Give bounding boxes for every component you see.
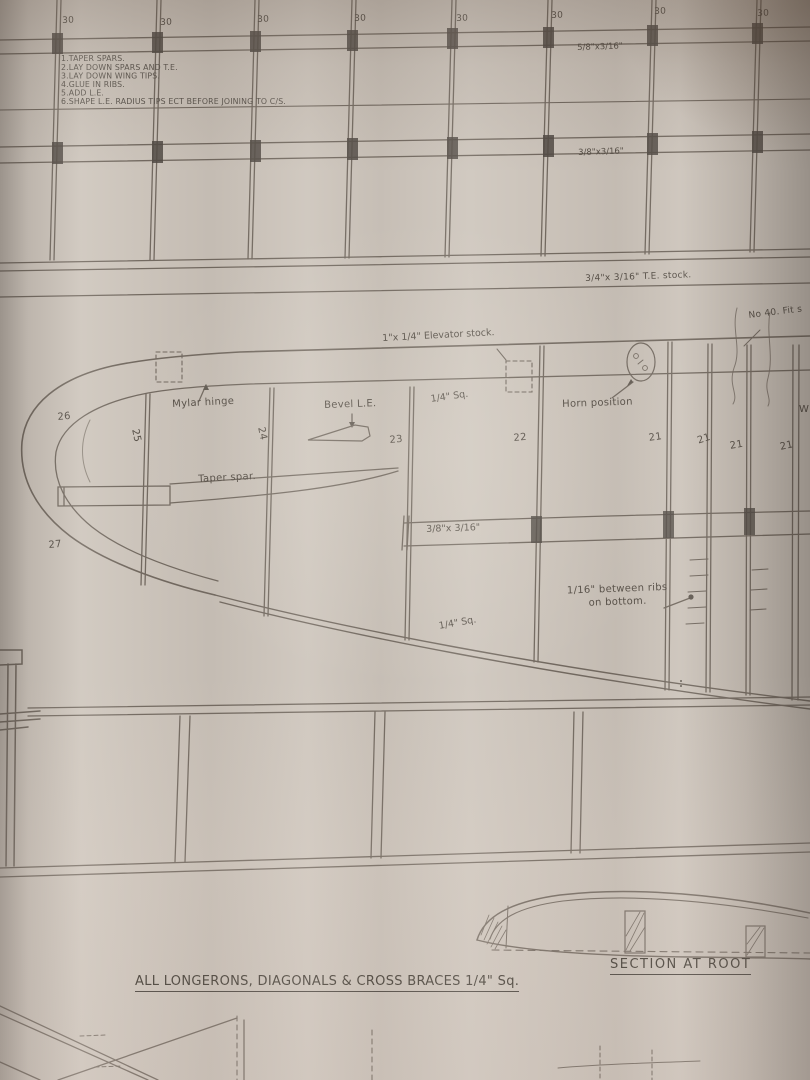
instruction-line: 5.ADD L.E. [61, 89, 389, 98]
rib-number: 26 [57, 411, 71, 423]
edge-partial-label: W [799, 404, 809, 415]
rib-number-label: 30 [257, 15, 269, 25]
plan-linework [0, 0, 810, 1080]
rib-number: 22 [513, 432, 527, 444]
instruction-line: 4.GLUE IN RIBS. [61, 81, 389, 90]
rib-number: 21 [648, 431, 663, 444]
rib-number: 21 [729, 439, 744, 452]
rib-number-label: 30 [551, 11, 563, 21]
instruction-line: 2.LAY DOWN SPARS AND T.E. [61, 64, 389, 73]
instruction-line: 6.SHAPE L.E. RADIUS TIPS ECT BEFORE JOIN… [61, 98, 389, 107]
instruction-line: 1.TAPER SPARS. [61, 55, 389, 64]
rib-number-label: 30 [354, 14, 366, 24]
bevel-le-label: Bevel L.E. [324, 398, 377, 411]
spar-size-label: 3/8"x3/16" [578, 146, 624, 158]
instruction-line: 3.LAY DOWN WING TIPS. [61, 72, 389, 81]
fuselage-linework [0, 650, 810, 877]
bevel-le-detail [308, 425, 370, 441]
bottom-truss-linework [0, 1006, 700, 1080]
model-plan-photo: 30 30 30 30 30 30 30 30 1.TAPER SPARS. 2… [0, 0, 810, 1080]
rib-number-label: 30 [456, 14, 468, 24]
section-at-root-label: SECTION AT ROOT [610, 957, 751, 975]
capstrip-ticks [680, 559, 768, 687]
horn-position-marker [612, 343, 655, 398]
section-spars [625, 911, 765, 957]
between-ribs-note: 1/16" between ribs on bottom. [552, 580, 683, 611]
rib-number: 27 [48, 539, 62, 551]
rib-number-label: 30 [62, 16, 74, 26]
instruction-list: 1.TAPER SPARS. 2.LAY DOWN SPARS AND T.E.… [61, 55, 389, 106]
rib-number: 23 [389, 434, 403, 446]
rib-number-label: 30 [160, 18, 172, 28]
rib-number-label: 30 [654, 7, 666, 17]
airfoil-section [477, 891, 810, 959]
spar-size-label: 5/8"x3/16" [577, 41, 623, 53]
annotation-arrows [199, 330, 760, 608]
spar-size-label: 3/8"x 3/16" [426, 522, 480, 535]
longerons-note: ALL LONGERONS, DIAGONALS & CROSS BRACES … [135, 974, 519, 992]
rib-number-label: 30 [757, 9, 769, 19]
